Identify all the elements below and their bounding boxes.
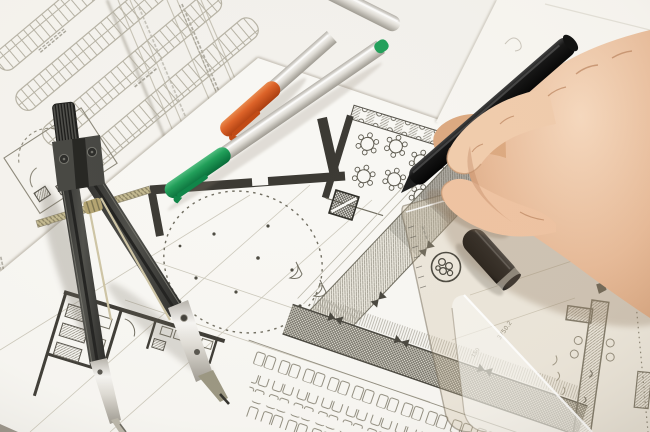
vignette — [0, 0, 650, 432]
scene-canvas: 3750.2 150 — [0, 0, 650, 432]
photo-architects-desk: 3750.2 150 — [0, 0, 650, 432]
